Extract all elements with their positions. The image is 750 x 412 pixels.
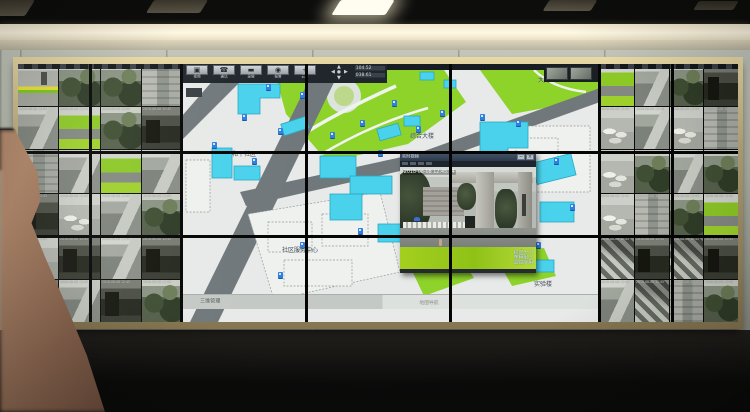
cove-light: [0, 24, 750, 40]
camera-feed-tile[interactable]: 2018-08-08 12:45: [142, 64, 182, 106]
camera-grid-right: 2018-08-08 12:452018-08-08 12:452018-08-…: [600, 64, 738, 322]
camera-feed-tile[interactable]: 2018-08-08 12:45: [59, 194, 99, 236]
map-bottom-bar: 三维管理 地图导航: [182, 294, 600, 309]
feed-timestamp: 2018-08-08 12:45: [60, 238, 88, 241]
camera-feed-tile[interactable]: 2018-08-08 12:45: [101, 237, 141, 279]
toolbar-monitor-button[interactable]: ▣视频: [185, 65, 209, 81]
video-timestamp: 2018-08-08 12:45:04: [403, 170, 456, 175]
popup-title: 实时视频: [402, 154, 482, 158]
feed-timestamp: 2018-08-08 12:45: [601, 238, 629, 241]
camera-feed-tile[interactable]: 2018-08-08 12:45: [670, 64, 704, 106]
trees: [495, 189, 517, 230]
minimize-icon[interactable]: ─: [517, 154, 525, 160]
tree: [457, 183, 476, 210]
feed-timestamp: 2018-08-08 12:45: [102, 281, 130, 284]
monitor-bezel: [89, 64, 92, 322]
camera-feed-tile[interactable]: 2018-08-08 12:45: [670, 280, 704, 322]
camera-feed-tile[interactable]: 2018-08-08 12:45: [704, 280, 738, 322]
map-camera-icon[interactable]: [266, 84, 271, 90]
feed-timestamp: 2018-08-08 12:45: [102, 238, 130, 241]
feed-timestamp: 2018-08-08 12:45: [705, 108, 733, 111]
live-video-popup[interactable]: 实时视频 ─ ×: [400, 152, 536, 273]
camera-feed-tile[interactable]: 2018-08-08 12:45: [635, 107, 669, 149]
camera-feed-tile[interactable]: 2018-08-08 12:45: [635, 150, 669, 192]
map-camera-icon[interactable]: [278, 272, 283, 278]
camera-feed-tile[interactable]: 2018-08-08 12:45: [101, 194, 141, 236]
feed-timestamp: 2018-08-08 12:45: [601, 108, 629, 111]
control-room-photo: 2018-08-08 12:452018-08-08 12:452018-08-…: [0, 0, 750, 412]
monitor-bezel: [598, 64, 601, 322]
monitor-bezel: [180, 64, 183, 322]
map-camera-icon[interactable]: [212, 142, 217, 148]
ceiling-vent: [693, 1, 739, 10]
pan-left-icon[interactable]: ◀: [331, 70, 335, 75]
ceiling-fascia: [0, 40, 750, 50]
camera-feed-tile[interactable]: 2018-08-08 12:45: [600, 194, 634, 236]
toolbar-status: 104.52038.61: [355, 66, 385, 79]
camera-feed-tile[interactable]: 2018-08-08 12:45: [600, 64, 634, 106]
camera-feed-tile[interactable]: 2018-08-08 12:45: [704, 194, 738, 236]
ceiling-light: [331, 0, 394, 15]
camera-feed-tile[interactable]: 2018-08-08 12:45: [670, 237, 704, 279]
toolbar-record-button[interactable]: ▬录像: [239, 65, 263, 81]
camera-feed-tile[interactable]: 2018-08-08 12:45: [18, 64, 58, 106]
camera-feed-tile[interactable]: 2018-08-08 12:45: [600, 280, 634, 322]
map-camera-icon[interactable]: [536, 242, 541, 248]
map-label: 社区服务中心: [282, 248, 318, 254]
map-camera-icon[interactable]: [392, 100, 397, 106]
camera-feed-tile[interactable]: 2018-08-08 12:45: [600, 107, 634, 149]
popup-control[interactable]: [410, 162, 416, 165]
feed-timestamp: 2018-08-08 12:45: [636, 281, 664, 284]
pan-right-icon[interactable]: ▶: [344, 70, 348, 75]
map-tab-label[interactable]: 三维管理: [200, 299, 220, 304]
map-camera-icon[interactable]: [480, 114, 485, 120]
camera-preview-thumbnail[interactable]: [546, 67, 568, 80]
toolbar-alarm-button[interactable]: ◉报警: [266, 65, 290, 81]
feed-timestamp: 2018-08-08 12:45: [60, 108, 88, 111]
feed-timestamp: 2018-08-08 12:45: [143, 195, 171, 198]
popup-status-bar: [400, 269, 536, 273]
camera-feed-tile[interactable]: 2018-08-08 12:45: [670, 107, 704, 149]
map-camera-icon[interactable]: [570, 204, 575, 210]
toolbar-status-line: 104.52: [355, 66, 385, 71]
ceiling: [0, 0, 750, 50]
feed-timestamp: 2018-08-08 12:45: [102, 108, 130, 111]
camera-feed-tile[interactable]: 2018-08-08 12:45: [670, 150, 704, 192]
close-icon[interactable]: ×: [526, 154, 534, 160]
video-watermark-line: 监控专用: [514, 260, 533, 265]
monitor-bezel: [449, 64, 452, 322]
gate-window: [522, 194, 526, 216]
toolbar-status-line: 038.61: [355, 73, 385, 78]
toolbar-button-label: 视频: [193, 75, 200, 79]
feed-timestamp: 2018-08-08 12:45: [601, 281, 629, 284]
map-camera-icon[interactable]: [242, 114, 247, 120]
camera-feed-tile[interactable]: 2018-08-08 12:45: [635, 280, 669, 322]
video-watermark: 校区大门车辆出入监控专用: [514, 251, 533, 265]
camera-feed-tile[interactable]: 2018-08-08 12:45: [600, 237, 634, 279]
popup-control[interactable]: [402, 162, 408, 165]
feed-timestamp: 2018-08-08 12:45: [143, 238, 171, 241]
camera-feed-tile[interactable]: 2018-08-08 12:45: [704, 64, 738, 106]
camera-feed-tile[interactable]: 2018-08-08 12:45: [59, 64, 99, 106]
right-grid-toolbar: [600, 64, 738, 69]
feed-timestamp: 2018-08-08 12:45: [143, 281, 171, 284]
video-wall-screens: 2018-08-08 12:452018-08-08 12:452018-08-…: [18, 64, 738, 322]
popup-control[interactable]: [426, 162, 432, 165]
map-bottom-label: 地图导航: [419, 301, 438, 306]
monitor-bezel: [305, 64, 308, 322]
feed-timestamp: 2018-08-08 12:45: [671, 108, 699, 111]
video-wall-frame: 2018-08-08 12:452018-08-08 12:452018-08-…: [13, 57, 743, 329]
map-camera-icon[interactable]: [516, 120, 521, 126]
camera-feed-tile[interactable]: 2018-08-08 12:45: [101, 64, 141, 106]
map-legend-chip: [186, 88, 202, 97]
feed-timestamp: 2018-08-08 12:45: [671, 281, 699, 284]
map-camera-icon[interactable]: [358, 228, 363, 234]
toolbar-button-label: 录像: [247, 75, 254, 79]
toolbar-phone-button[interactable]: ☎通话: [212, 65, 236, 81]
left-grid-toolbar: [18, 64, 182, 69]
camera-feed-tile[interactable]: 2018-08-08 12:45: [18, 107, 58, 149]
camera-feed-tile[interactable]: 2018-08-08 12:45: [142, 150, 182, 192]
popup-control[interactable]: [418, 162, 424, 165]
feed-timestamp: 2018-08-08 12:45: [671, 238, 699, 241]
map-camera-icon[interactable]: [440, 110, 445, 116]
camera-feed-tile[interactable]: 2018-08-08 12:45: [600, 150, 634, 192]
camera-feed-tile[interactable]: 2018-08-08 12:45: [635, 64, 669, 106]
camera-feed-tile[interactable]: 2018-08-08 12:45: [101, 107, 141, 149]
camera-feed-tile[interactable]: 2018-08-08 12:45: [704, 107, 738, 149]
map-label: 实验楼: [534, 282, 552, 288]
camera-feed-tile[interactable]: 2018-08-08 12:45: [635, 237, 669, 279]
camera-feed-tile[interactable]: 2018-08-08 12:45: [670, 194, 704, 236]
camera-feed-tile[interactable]: 2018-08-08 12:45: [59, 237, 99, 279]
camera-feed-tile[interactable]: 2018-08-08 12:45: [142, 280, 182, 322]
map-overlays: 和平社区社区服务中心东苑小区大门综合大楼实验楼: [182, 64, 600, 322]
map-camera-icon[interactable]: [416, 126, 421, 132]
feed-timestamp: 2018-08-08 12:45: [705, 195, 733, 198]
camera-feed-tile[interactable]: 2018-08-08 12:45: [704, 237, 738, 279]
feed-timestamp: 2018-08-08 12:45: [636, 238, 664, 241]
feed-timestamp: 2018-08-08 12:45: [601, 195, 629, 198]
camera-feed-tile[interactable]: 2018-08-08 12:45: [59, 150, 99, 192]
monitor-bezel: [18, 235, 738, 238]
ceiling-vent: [543, 0, 598, 11]
map-camera-icon[interactable]: [330, 132, 335, 138]
map-label: 综合大楼: [410, 134, 434, 140]
monitor-bezel: [18, 151, 738, 154]
umbrella: [414, 217, 420, 221]
feed-timestamp: 2018-08-08 12:45: [60, 281, 88, 284]
map-camera-icon[interactable]: [278, 128, 283, 134]
camera-feed-tile[interactable]: 2018-08-08 12:45: [101, 280, 141, 322]
feed-timestamp: 2018-08-08 12:45: [705, 281, 733, 284]
camera-feed-tile[interactable]: 2018-08-08 12:45: [704, 150, 738, 192]
room-shadow-area: [0, 330, 750, 412]
toolbar-button-label: 报警: [274, 75, 281, 79]
monitor-bezel: [671, 64, 674, 322]
gis-map-app[interactable]: 和平社区社区服务中心东苑小区大门综合大楼实验楼 ▣视频☎通话▬录像◉报警+云台 …: [182, 64, 600, 322]
feed-timestamp: 2018-08-08 12:45: [60, 195, 88, 198]
ceiling-vent: [146, 0, 208, 13]
map-camera-icon[interactable]: [252, 158, 257, 164]
feed-timestamp: 2018-08-08 12:45: [19, 108, 47, 111]
camera-preview-thumbnail[interactable]: [570, 67, 592, 80]
camera-feed-tile[interactable]: 2018-08-08 12:45: [142, 194, 182, 236]
feed-timestamp: 2018-08-08 12:45: [636, 195, 664, 198]
feed-timestamp: 2018-08-08 12:45: [143, 108, 171, 111]
live-video-feed[interactable]: 2018-08-08 12:45:04 校区大门车辆出入监控专用: [400, 167, 536, 269]
camera-preview-bar: [544, 65, 598, 82]
feed-timestamp: 2018-08-08 12:45: [636, 108, 664, 111]
feed-timestamp: 2018-08-08 12:45: [102, 195, 130, 198]
camera-feed-tile[interactable]: 2018-08-08 12:45: [142, 107, 182, 149]
camera-feed-tile[interactable]: 2018-08-08 12:45: [59, 107, 99, 149]
feed-timestamp: 2018-08-08 12:45: [705, 238, 733, 241]
toolbar-button-label: 通话: [220, 75, 227, 79]
map-camera-icon[interactable]: [554, 158, 559, 164]
pan-down-icon[interactable]: ▼: [337, 76, 341, 81]
camera-feed-tile[interactable]: 2018-08-08 12:45: [101, 150, 141, 192]
feed-timestamp: 2018-08-08 12:45: [671, 195, 699, 198]
toolbar-buttons: ▣视频☎通话▬录像◉报警+云台: [185, 65, 317, 81]
pan-control[interactable]: ▲ ◀ ● ▶ ▼: [328, 65, 352, 82]
map-camera-icon[interactable]: [360, 120, 365, 126]
camera-feed-tile[interactable]: 2018-08-08 12:45: [142, 237, 182, 279]
camera-feed-tile[interactable]: 2018-08-08 12:45: [635, 194, 669, 236]
